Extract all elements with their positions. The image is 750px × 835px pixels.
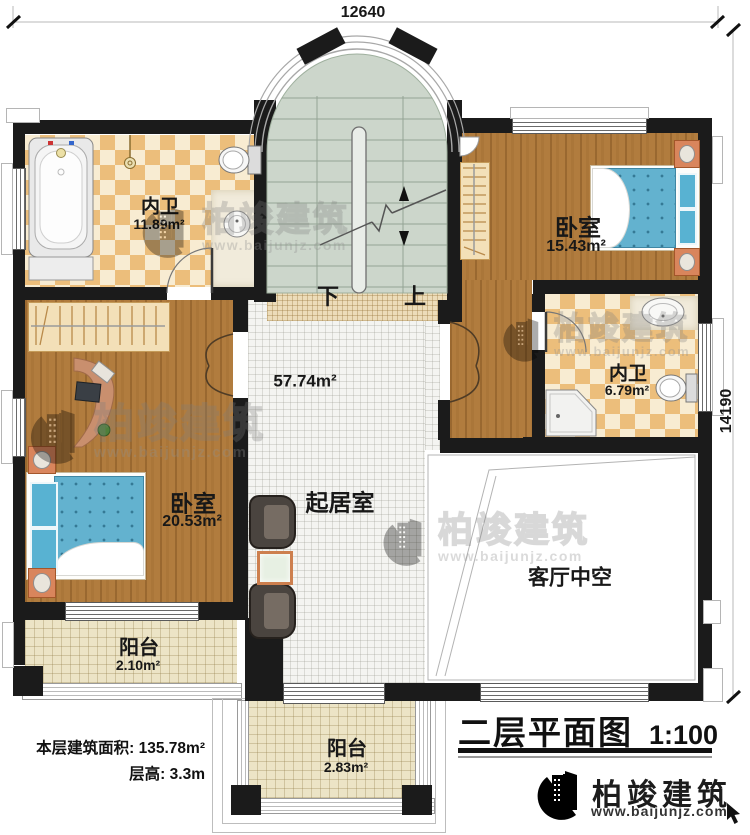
window-trim	[2, 622, 14, 668]
wall	[438, 400, 450, 440]
window-trim	[510, 107, 649, 119]
wardrobe	[28, 302, 170, 352]
stair-treads	[267, 96, 447, 293]
column	[402, 785, 432, 815]
window-trim	[1, 390, 13, 464]
nightstand	[28, 568, 56, 598]
pillow	[678, 209, 697, 245]
dimension-right-value: 14190	[719, 389, 735, 434]
stair-up-label: 上	[404, 286, 426, 308]
wall	[533, 280, 712, 294]
brand-logo-icon	[536, 764, 588, 820]
wall	[13, 602, 65, 620]
brand-url: www.baijunjz.com	[591, 803, 728, 819]
sliding-door	[65, 602, 199, 621]
title-underline-thin	[458, 756, 712, 758]
arch-wall-segment	[296, 27, 437, 64]
window	[512, 118, 647, 134]
wall	[233, 398, 248, 605]
wall	[383, 683, 480, 701]
window	[12, 398, 26, 457]
room-area-bedroom-left: 20.53m²	[162, 514, 222, 530]
room-area-balcony-bottom: 2.83m²	[324, 760, 368, 774]
wardrobe	[460, 162, 490, 260]
wall	[13, 120, 276, 134]
window-trim	[703, 600, 721, 624]
room-area-bath-right: 6.79m²	[605, 383, 649, 397]
armchair	[249, 495, 296, 549]
room-area-bath-top: 11.89m²	[133, 217, 184, 231]
stair-handrail	[352, 127, 366, 293]
room-label-bedroom-top: 卧室	[555, 217, 601, 240]
drawing-title-row: 二层平面图 1:100	[458, 706, 718, 754]
stair-floor	[267, 54, 447, 293]
dimension-top-value: 12640	[341, 5, 386, 21]
hallway-floor	[450, 280, 532, 438]
floor-height-line: 层高: 3.3m	[30, 762, 205, 784]
wall	[197, 602, 248, 620]
floor-height-value: 3.3m	[170, 766, 205, 783]
window-trim	[712, 136, 723, 184]
room-area-bedroom-top: 15.43m²	[546, 239, 606, 255]
nightstand	[674, 140, 700, 168]
title-underline	[458, 748, 712, 753]
wall	[523, 437, 712, 453]
room-label-balcony-bottom: 阳台	[327, 739, 367, 759]
window-trim	[1, 163, 13, 255]
room-area-balcony-left: 2.10m²	[116, 658, 160, 672]
drawing-scale: 1:100	[649, 720, 718, 751]
room-label-bath-right: 内卫	[609, 365, 647, 384]
wall	[233, 287, 248, 332]
window-trim	[6, 108, 40, 123]
stair-down-label: 下	[317, 286, 339, 308]
pillow	[30, 482, 58, 528]
pillow	[678, 173, 697, 209]
drawing-title: 二层平面图	[458, 706, 633, 754]
brand-logo	[536, 764, 588, 820]
floor-area-line: 本层建筑面积: 135.78m²	[30, 736, 205, 758]
wall	[440, 438, 535, 453]
floor-plan-page: { "dimensions": { "top": "12640", "right…	[0, 0, 750, 835]
armchair	[249, 583, 296, 639]
wall	[447, 118, 512, 133]
room-label-bath-top: 内卫	[141, 198, 179, 217]
window	[698, 323, 713, 412]
window-trim	[703, 668, 723, 702]
nightstand	[28, 446, 56, 474]
room-area-living: 57.74m²	[273, 373, 336, 390]
nightstand	[674, 248, 700, 276]
column	[231, 785, 261, 815]
wall	[532, 294, 545, 312]
wall	[13, 287, 167, 300]
side-table	[257, 551, 293, 585]
wall	[254, 100, 276, 302]
room-label-living: 起居室	[306, 492, 375, 515]
balcony-left-railing	[22, 683, 242, 700]
floor-height-label: 层高:	[129, 766, 165, 783]
window	[480, 683, 649, 702]
bath-right-counter	[630, 296, 698, 330]
wall	[438, 300, 450, 324]
floor-area-label: 本层建筑面积:	[36, 740, 134, 757]
stair-break-line	[320, 186, 446, 246]
sliding-door	[283, 683, 385, 704]
room-label-void: 客厅中空	[528, 568, 612, 589]
column	[13, 666, 43, 696]
wall	[532, 350, 545, 437]
floor-area-value: 135.78m²	[139, 740, 205, 757]
window	[12, 168, 26, 250]
room-label-balcony-left: 阳台	[119, 638, 159, 658]
